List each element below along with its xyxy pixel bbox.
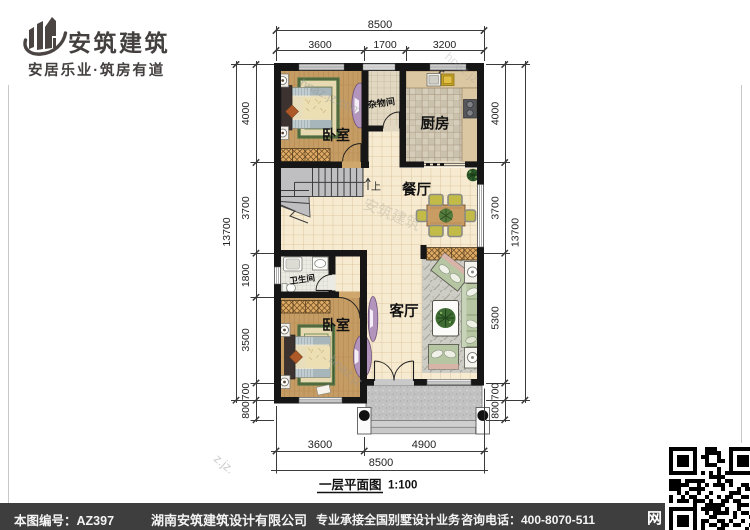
svg-text:4000: 4000: [240, 102, 252, 126]
svg-text:5300: 5300: [490, 306, 502, 330]
svg-text:800: 800: [240, 401, 252, 419]
svg-text:4000: 4000: [490, 102, 502, 126]
svg-text:700: 700: [240, 383, 252, 401]
svg-text:3700: 3700: [240, 196, 252, 220]
svg-text:3200: 3200: [433, 39, 457, 51]
svg-text:1700: 1700: [373, 39, 397, 51]
svg-text:3600: 3600: [308, 439, 332, 451]
svg-text:800: 800: [490, 401, 502, 419]
svg-text:3500: 3500: [240, 328, 252, 352]
svg-text:13700: 13700: [221, 217, 233, 246]
svg-text:3700: 3700: [490, 196, 502, 220]
svg-text:餐厅: 餐厅: [402, 181, 431, 199]
svg-text:8500: 8500: [369, 457, 393, 469]
svg-text:13700: 13700: [510, 218, 522, 247]
svg-text:z.jz.: z.jz.: [211, 452, 237, 477]
svg-text:4900: 4900: [412, 439, 436, 451]
svg-text:一层平面图: 一层平面图: [319, 478, 382, 492]
svg-text:1:100: 1:100: [388, 480, 417, 492]
svg-text:卧室: 卧室: [322, 127, 350, 143]
svg-text:1800: 1800: [240, 264, 252, 288]
svg-text:上: 上: [371, 181, 381, 193]
svg-text:700: 700: [490, 383, 502, 401]
svg-text:8500: 8500: [368, 19, 392, 31]
svg-text:卧室: 卧室: [322, 317, 350, 333]
svg-text:3600: 3600: [308, 39, 332, 51]
svg-text:厨房: 厨房: [421, 115, 450, 133]
svg-text:客厅: 客厅: [389, 302, 419, 320]
